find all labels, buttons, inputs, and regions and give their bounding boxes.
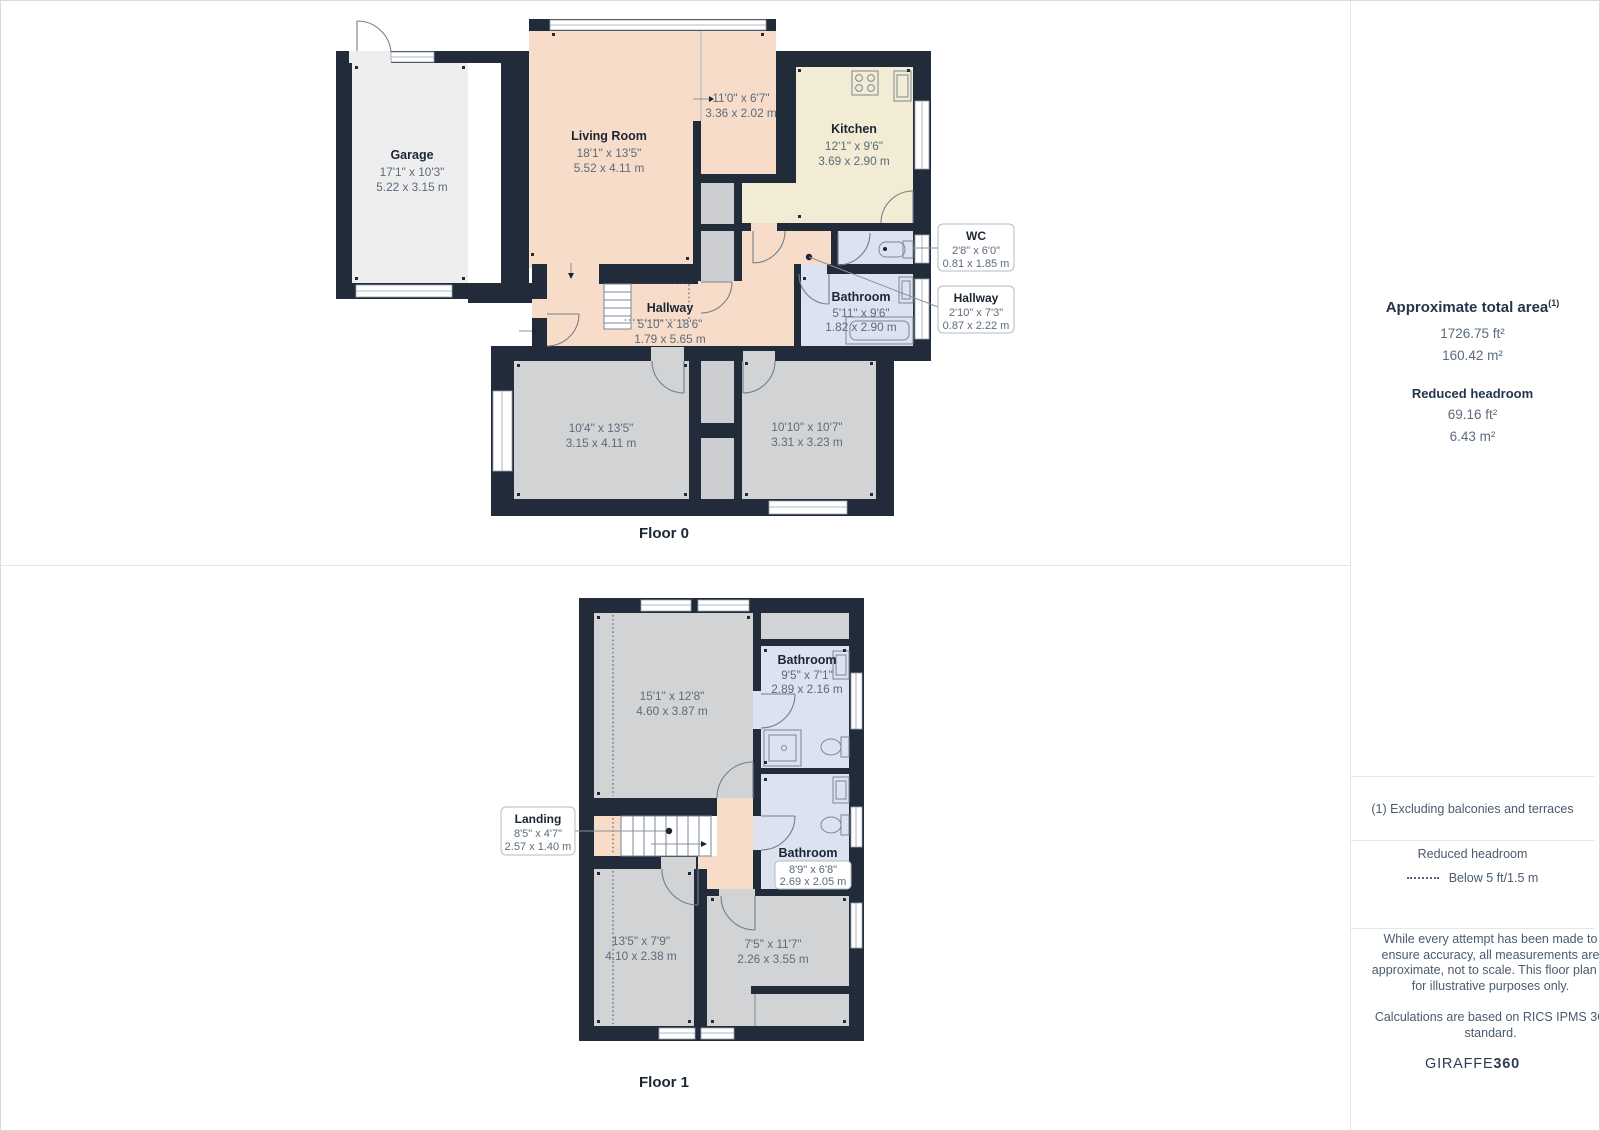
svg-text:Hallway: Hallway: [647, 301, 694, 315]
floorplan-page: Garage 17'1" x 10'3" 5.22 x 3.15 m Livin…: [0, 0, 1600, 1131]
floor1-plan: 15'1" x 12'8" 4.60 x 3.87 m Bathroom 9'5…: [481, 566, 881, 1056]
svg-text:1.82 x 2.90 m: 1.82 x 2.90 m: [825, 320, 897, 334]
svg-text:5.22 x 3.15 m: 5.22 x 3.15 m: [376, 180, 448, 194]
floor1-stairs: [621, 816, 711, 856]
svg-text:2.89 x 2.16 m: 2.89 x 2.16 m: [771, 682, 843, 696]
kitchen-floor-ext: [742, 183, 796, 223]
bedroom-br-label: 7'5" x 11'7" 2.26 x 3.55 m: [737, 937, 809, 966]
landing-left-floor: [594, 816, 621, 856]
svg-text:10'10" x 10'7": 10'10" x 10'7": [771, 420, 842, 434]
living-room-floor-lower: [529, 121, 693, 268]
bedroom-large-label: 15'1" x 12'8" 4.60 x 3.87 m: [636, 689, 708, 718]
svg-text:10'4" x 13'5": 10'4" x 13'5": [569, 421, 634, 435]
svg-text:2'8" x 6'0": 2'8" x 6'0": [952, 245, 1000, 257]
total-area-ft: 1726.75 ft²: [1351, 326, 1594, 341]
svg-text:WC: WC: [966, 229, 986, 243]
svg-text:5.52 x 4.11 m: 5.52 x 4.11 m: [574, 161, 645, 175]
svg-text:12'1" x 9'6": 12'1" x 9'6": [825, 139, 883, 153]
giraffe360-logo: GIRAFFE360: [1351, 1056, 1594, 1072]
svg-text:0.81 x 1.85 m: 0.81 x 1.85 m: [943, 258, 1010, 270]
svg-text:2.57 x 1.40 m: 2.57 x 1.40 m: [505, 841, 572, 853]
svg-text:3.15 x 4.11 m: 3.15 x 4.11 m: [566, 436, 637, 450]
living-room-label: Living Room 18'1" x 13'5" 5.52 x 4.11 m: [571, 129, 647, 175]
living-sub-label: 11'0" x 6'7" 3.36 x 2.02 m: [705, 91, 777, 120]
svg-text:9'5" x 7'1": 9'5" x 7'1": [781, 668, 833, 682]
sidebar-divider-3: [1351, 928, 1594, 929]
svg-text:8'5" x 4'7": 8'5" x 4'7": [514, 828, 562, 840]
svg-text:Kitchen: Kitchen: [831, 122, 877, 136]
bedroom2-label: 10'10" x 10'7" 3.31 x 3.23 m: [771, 420, 843, 449]
svg-text:11'0" x 6'7": 11'0" x 6'7": [712, 91, 769, 105]
svg-text:2'10" x 7'3": 2'10" x 7'3": [949, 307, 1003, 319]
sidebar-divider-2: [1351, 840, 1594, 841]
svg-text:8'9" x 6'8": 8'9" x 6'8": [789, 864, 837, 876]
storage-cell-c: [701, 361, 734, 423]
svg-text:Bathroom: Bathroom: [778, 846, 837, 860]
svg-text:Living Room: Living Room: [571, 129, 647, 143]
dotted-line-icon: [1407, 877, 1439, 879]
reduced-headroom-ft: 69.16 ft²: [1351, 407, 1594, 422]
summary-sidebar: Approximate total area(1) 1726.75 ft² 16…: [1350, 1, 1594, 1130]
footnote-ref: (1): [1548, 298, 1559, 308]
storage-cell-d: [701, 438, 734, 499]
svg-text:Bathroom: Bathroom: [831, 290, 890, 304]
disclaimer: While every attempt has been made to ens…: [1351, 932, 1600, 1057]
legend-item-label: Below 5 ft/1.5 m: [1449, 871, 1539, 885]
svg-text:18'1" x 13'5": 18'1" x 13'5": [577, 146, 642, 160]
svg-text:3.69 x 2.90 m: 3.69 x 2.90 m: [818, 154, 890, 168]
storage-cell-b: [701, 231, 734, 281]
eaves-strip-floor: [761, 613, 849, 639]
svg-text:0.87 x 2.22 m: 0.87 x 2.22 m: [943, 320, 1010, 332]
storage-cell-a: [701, 183, 734, 224]
svg-text:3.36 x 2.02 m: 3.36 x 2.02 m: [705, 106, 777, 120]
svg-text:2.69 x 2.05 m: 2.69 x 2.05 m: [780, 876, 847, 888]
svg-text:15'1" x 12'8": 15'1" x 12'8": [640, 689, 705, 703]
svg-text:4.60 x 3.87 m: 4.60 x 3.87 m: [636, 704, 708, 718]
sidebar-divider-1: [1351, 776, 1594, 777]
svg-text:Hallway: Hallway: [954, 291, 999, 305]
total-area-title: Approximate total area(1): [1351, 298, 1594, 316]
svg-text:5'10" x 18'6": 5'10" x 18'6": [638, 317, 703, 331]
svg-text:17'1" x 10'3": 17'1" x 10'3": [380, 165, 445, 179]
svg-text:1.79 x 5.65 m: 1.79 x 5.65 m: [634, 332, 706, 346]
svg-text:4.10 x 2.38 m: 4.10 x 2.38 m: [605, 949, 677, 963]
svg-text:5'11" x 9'6": 5'11" x 9'6": [832, 306, 889, 320]
svg-text:7'5" x 11'7": 7'5" x 11'7": [744, 937, 801, 951]
wc-floor: [838, 231, 913, 268]
living-sub-floor: [701, 121, 776, 174]
total-area-m: 160.42 m²: [1351, 348, 1594, 363]
legend-title: Reduced headroom: [1351, 847, 1594, 861]
svg-text:Bathroom: Bathroom: [777, 653, 836, 667]
svg-text:13'5" x 7'9": 13'5" x 7'9": [612, 934, 670, 948]
disclaimer-paragraph-2: Calculations are based on RICS IPMS 3C s…: [1369, 1010, 1600, 1041]
reduced-headroom-m: 6.43 m²: [1351, 429, 1594, 444]
floor0-stairs: [604, 284, 631, 329]
footnote-text: (1) Excluding balconies and terraces: [1351, 802, 1594, 816]
bedroom-bl-label: 13'5" x 7'9" 4.10 x 2.38 m: [605, 934, 677, 963]
bathroom-top-label: Bathroom 9'5" x 7'1" 2.89 x 2.16 m: [771, 653, 843, 696]
floor0-label: Floor 0: [554, 525, 774, 542]
floor0-plan: Garage 17'1" x 10'3" 5.22 x 3.15 m Livin…: [331, 9, 1031, 521]
disclaimer-paragraph-1: While every attempt has been made to ens…: [1369, 932, 1600, 994]
legend-row: Below 5 ft/1.5 m: [1351, 871, 1594, 885]
svg-text:3.31 x 3.23 m: 3.31 x 3.23 m: [771, 435, 843, 449]
reduced-headroom-title: Reduced headroom: [1351, 386, 1594, 401]
floor1-label: Floor 1: [554, 1074, 774, 1091]
bathroom0-label: Bathroom 5'11" x 9'6" 1.82 x 2.90 m: [825, 290, 897, 334]
svg-text:Landing: Landing: [515, 812, 562, 826]
svg-text:Garage: Garage: [390, 148, 433, 162]
bedroom1-label: 10'4" x 13'5" 3.15 x 4.11 m: [566, 421, 637, 450]
svg-text:2.26 x 3.55 m: 2.26 x 3.55 m: [737, 952, 809, 966]
